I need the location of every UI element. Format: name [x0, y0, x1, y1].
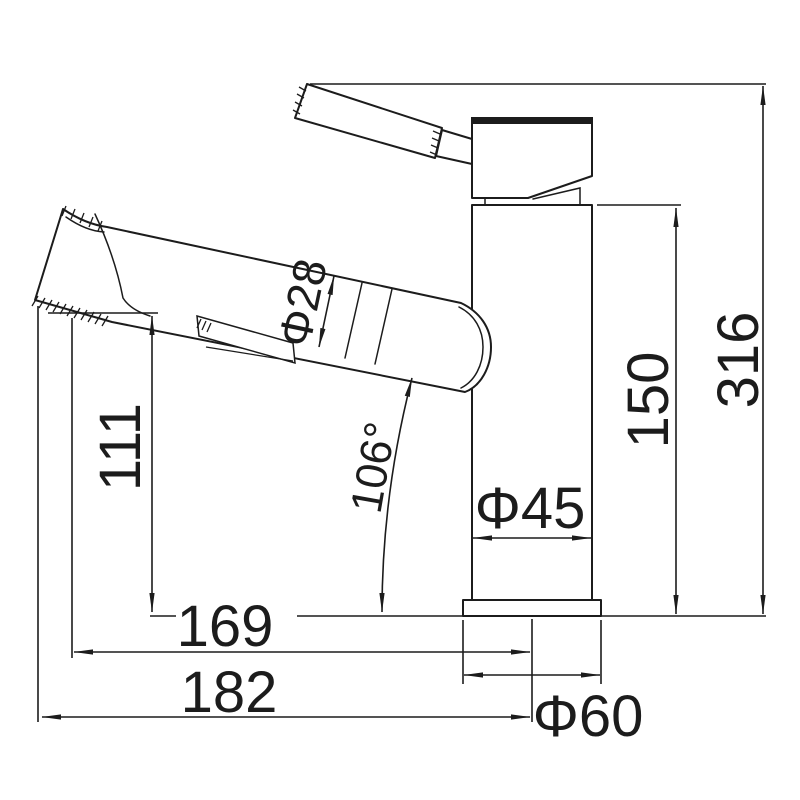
base-flange	[463, 600, 601, 616]
faucet-dimension-drawing: 169 182 Φ45 Φ60 111 150 316 Φ28 106°	[0, 0, 800, 800]
faucet-handle	[293, 84, 472, 164]
label-reach-to-outlet: 169	[177, 594, 274, 659]
label-outlet-height: 111	[88, 403, 153, 491]
label-upper-body-height: 150	[616, 352, 681, 449]
label-total-height: 316	[706, 312, 771, 409]
faucet-cap-housing	[471, 117, 593, 205]
cap-top-thick-edge	[471, 117, 593, 123]
faucet-spout	[32, 206, 491, 392]
technical-drawing-canvas: 169 182 Φ45 Φ60 111 150 316 Φ28 106°	[0, 0, 800, 800]
label-total-reach: 182	[181, 660, 278, 725]
label-base-diameter: Φ60	[533, 684, 644, 749]
label-body-diameter: Φ45	[475, 476, 586, 541]
label-spout-angle: 106°	[342, 418, 406, 516]
